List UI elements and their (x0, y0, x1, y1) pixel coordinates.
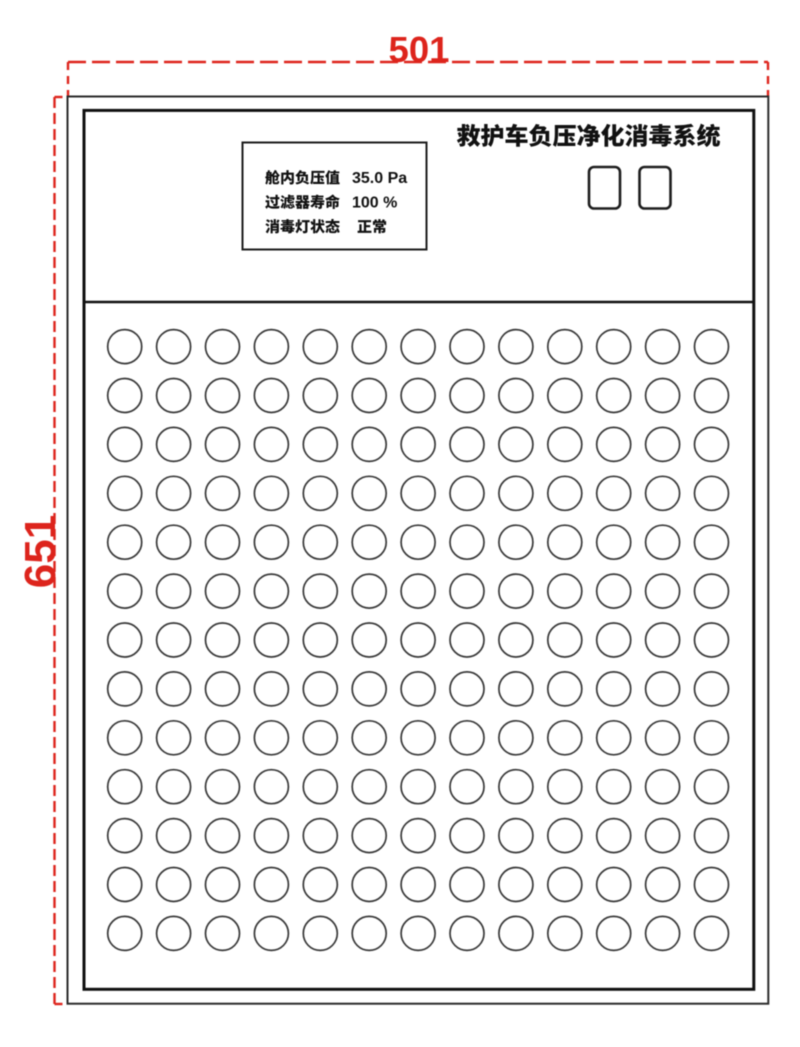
svg-text:100 %: 100 % (352, 195, 397, 212)
svg-text:501: 501 (389, 29, 450, 70)
svg-text:35.0 Pa: 35.0 Pa (352, 170, 407, 187)
svg-text:651: 651 (16, 515, 65, 588)
